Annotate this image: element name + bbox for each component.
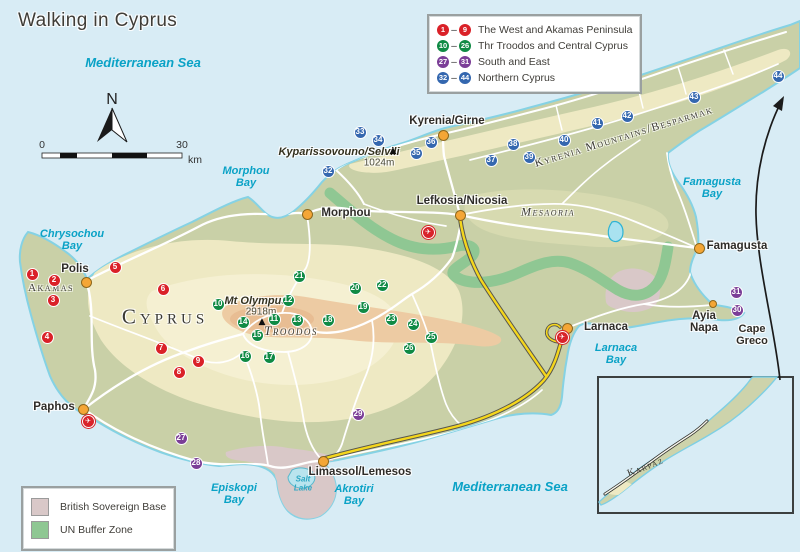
route-marker-36: 36 <box>425 136 438 149</box>
range-start-badge: 10 <box>437 40 449 52</box>
peak-triangle-icon: ▲ <box>390 146 397 156</box>
route-marker-24: 24 <box>407 318 420 331</box>
route-marker-22: 22 <box>376 279 389 292</box>
town-label-paphos: Paphos <box>33 401 75 413</box>
label-cyprus: Cyprus <box>122 306 208 329</box>
legend-zone-row: British Sovereign Base <box>31 498 166 516</box>
town-dot-paphos <box>78 404 89 415</box>
zone-swatch <box>31 521 49 539</box>
label-akrotiri: AkrotiriBay <box>334 484 373 508</box>
label-episkopi: EpiskopiBay <box>211 483 257 507</box>
route-marker-35: 35 <box>410 147 423 160</box>
route-marker-37: 37 <box>485 154 498 167</box>
range-label: Northern Cyprus <box>478 72 555 84</box>
route-marker-4: 4 <box>41 331 54 344</box>
town-dot-famagusta <box>694 243 705 254</box>
route-marker-11: 11 <box>268 313 281 326</box>
range-label: Thr Troodos and Central Cyprus <box>478 40 628 52</box>
town-label-morphou: Morphou <box>321 207 370 219</box>
peak-name-mt-olympus: Mt Olympus <box>225 295 288 307</box>
route-marker-33: 33 <box>354 126 367 139</box>
town-dot-polis <box>81 277 92 288</box>
legend-zone-row: UN Buffer Zone <box>31 521 166 539</box>
route-marker-38: 38 <box>507 138 520 151</box>
range-dash: – <box>449 25 459 36</box>
town-label-polis: Polis <box>61 263 88 275</box>
label-karpaz: Karpaz <box>626 456 666 480</box>
town-label-ayia-napa: AyiaNapa <box>690 310 718 334</box>
range-end-badge: 26 <box>459 40 471 52</box>
range-start-badge: 32 <box>437 72 449 84</box>
route-marker-32: 32 <box>322 165 335 178</box>
legend-route-range: 27 – 31 South and East <box>437 55 632 69</box>
range-label: South and East <box>478 56 550 68</box>
label-mesaoria: Mesaoria <box>521 206 575 219</box>
range-dash: – <box>449 57 459 68</box>
range-dash: – <box>449 41 459 52</box>
town-dot-kyrenia-girne <box>438 130 449 141</box>
route-marker-34: 34 <box>372 134 385 147</box>
route-marker-30: 30 <box>731 304 744 317</box>
town-label-kyrenia-girne: Kyrenia/Girne <box>409 115 484 127</box>
route-marker-17: 17 <box>263 351 276 364</box>
town-dot-limassol-lemesos <box>318 456 329 467</box>
legend-route-range: 10 – 26 Thr Troodos and Central Cyprus <box>437 39 632 53</box>
town-dot-morphou <box>302 209 313 220</box>
town-label-lefkosia-nicosia: Lefkosia/Nicosia <box>417 195 508 207</box>
page-title: Walking in Cyprus <box>18 10 177 32</box>
label-morphou: MorphouBay <box>222 166 269 190</box>
label-mediterranean-sea: Mediterranean Sea <box>85 56 201 70</box>
peak-elevation-kyparissovouno-selvili: 1024m <box>364 158 395 169</box>
route-marker-29: 29 <box>352 408 365 421</box>
route-marker-26: 26 <box>403 342 416 355</box>
airport-icon-0: ✈ <box>82 415 95 428</box>
route-marker-2: 2 <box>48 274 61 287</box>
route-marker-31: 31 <box>730 286 743 299</box>
legend-route-range: 1 – 9 The West and Akamas Peninsula <box>437 23 632 37</box>
label-cape: CapeGreco <box>736 324 768 348</box>
town-label-limassol-lemesos: Limassol/Lemesos <box>309 466 412 478</box>
route-marker-21: 21 <box>293 270 306 283</box>
label-chrysochou: ChrysochouBay <box>40 229 104 253</box>
route-marker-12: 12 <box>282 294 295 307</box>
map-overlay: 1234567891011121314151617181920212223242… <box>0 0 800 552</box>
legend-routes: 1 – 9 The West and Akamas Peninsula 10 –… <box>427 14 642 94</box>
route-marker-44: 44 <box>772 70 785 83</box>
route-marker-19: 19 <box>357 301 370 314</box>
route-marker-13: 13 <box>291 314 304 327</box>
route-marker-18: 18 <box>322 314 335 327</box>
town-label-larnaca: Larnaca <box>584 321 628 333</box>
range-label: The West and Akamas Peninsula <box>478 24 632 36</box>
route-marker-5: 5 <box>109 261 122 274</box>
airport-icon-1: ✈ <box>422 226 435 239</box>
label-troodos: Troodos <box>264 324 318 338</box>
zone-label: British Sovereign Base <box>60 501 166 513</box>
route-marker-41: 41 <box>591 117 604 130</box>
route-marker-6: 6 <box>157 283 170 296</box>
label-famagusta: FamagustaBay <box>683 177 741 201</box>
route-marker-7: 7 <box>155 342 168 355</box>
route-marker-28: 28 <box>190 457 203 470</box>
route-marker-20: 20 <box>349 282 362 295</box>
route-marker-8: 8 <box>173 366 186 379</box>
route-marker-15: 15 <box>251 329 264 342</box>
zone-swatch <box>31 498 49 516</box>
route-marker-16: 16 <box>239 350 252 363</box>
airport-icon-2: ✈ <box>556 331 569 344</box>
route-marker-3: 3 <box>47 294 60 307</box>
map-canvas: N 0 30 km 123456789101112131415161718192… <box>0 0 800 552</box>
range-end-badge: 44 <box>459 72 471 84</box>
label-mediterranean-sea: Mediterranean Sea <box>452 480 568 494</box>
range-end-badge: 9 <box>459 24 471 36</box>
town-label-famagusta: Famagusta <box>707 240 768 252</box>
route-marker-1: 1 <box>26 268 39 281</box>
route-marker-9: 9 <box>192 355 205 368</box>
route-marker-25: 25 <box>425 331 438 344</box>
route-marker-10: 10 <box>212 298 225 311</box>
town-dot-ayia-napa <box>709 300 717 308</box>
route-marker-43: 43 <box>688 91 701 104</box>
route-marker-40: 40 <box>558 134 571 147</box>
peak-name-kyparissovouno-selvili: Kyparissovouno/Selvili <box>278 146 399 158</box>
range-start-badge: 1 <box>437 24 449 36</box>
route-marker-39: 39 <box>523 151 536 164</box>
zone-label: UN Buffer Zone <box>60 524 133 536</box>
route-marker-42: 42 <box>621 110 634 123</box>
town-dot-lefkosia-nicosia <box>455 210 466 221</box>
route-marker-14: 14 <box>237 316 250 329</box>
legend-route-range: 32 – 44 Northern Cyprus <box>437 71 632 85</box>
label-larnaca: LarnacaBay <box>595 343 637 367</box>
route-marker-23: 23 <box>385 313 398 326</box>
route-marker-27: 27 <box>175 432 188 445</box>
range-start-badge: 27 <box>437 56 449 68</box>
range-end-badge: 31 <box>459 56 471 68</box>
range-dash: – <box>449 73 459 84</box>
legend-zones: British Sovereign Base UN Buffer Zone <box>21 486 176 551</box>
